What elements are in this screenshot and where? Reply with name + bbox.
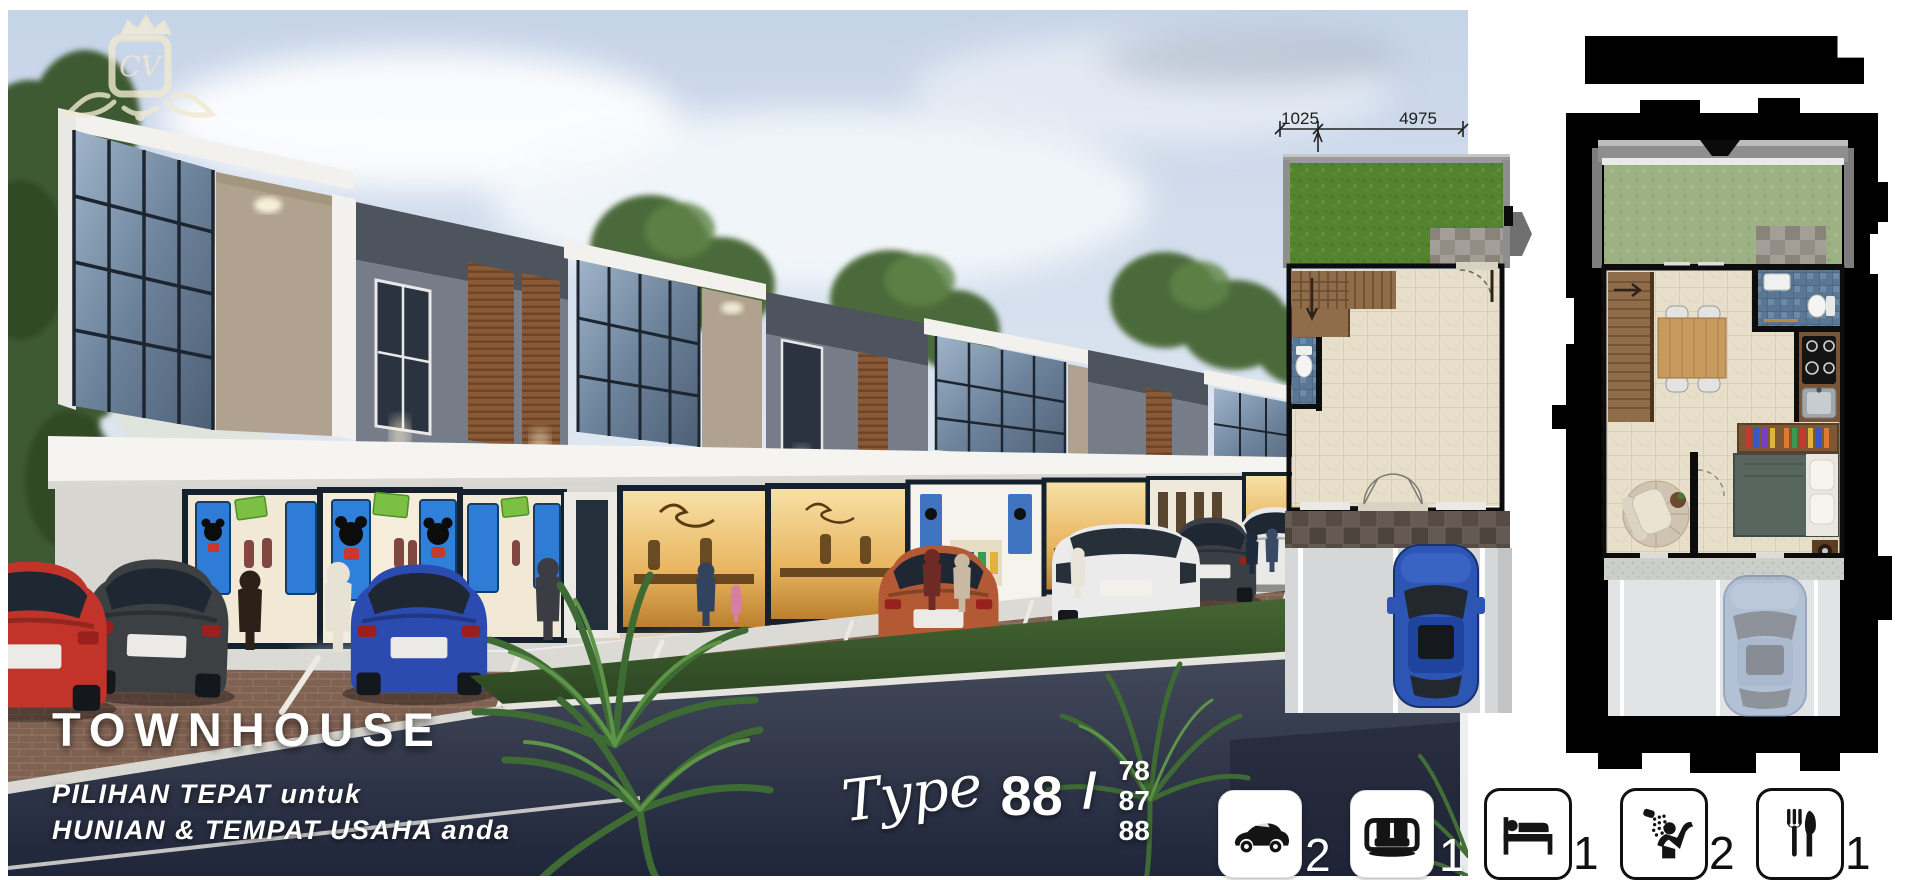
car-icon	[1229, 803, 1291, 865]
type-variant: 78	[1119, 756, 1150, 786]
type-variant-list: 78 87 88	[1119, 756, 1150, 846]
amenity-kitchen	[1756, 788, 1844, 880]
plan2-ghost-car	[1724, 576, 1806, 716]
tagline-line2: HUNIAN & TEMPAT USAHA anda	[52, 815, 511, 846]
bed-icon	[1498, 804, 1558, 864]
amenity-bedroom	[1484, 788, 1572, 880]
kitchen-count: 1	[1845, 830, 1871, 876]
type-variant: 87	[1119, 786, 1150, 816]
amenity-livingroom	[1350, 790, 1434, 878]
tagline-line1: PILIHAN TEPAT untuk	[52, 779, 361, 810]
type-label: Type 88 / 78 87 88	[842, 752, 1150, 846]
header-bar	[1585, 36, 1864, 84]
floorplan-1: 1025 4975	[1275, 109, 1532, 713]
amenity-bathroom	[1620, 788, 1708, 880]
type-separator: /	[1083, 766, 1097, 816]
carport-count: 2	[1305, 832, 1331, 878]
page-title: TOWNHOUSE	[52, 702, 443, 757]
sofa-icon	[1361, 803, 1423, 865]
cutlery-icon	[1770, 804, 1830, 864]
shower-icon	[1634, 804, 1694, 864]
amenity-carport	[1218, 790, 1302, 878]
type-variant: 88	[1119, 816, 1150, 846]
floorplan-2	[1592, 140, 1854, 716]
bathroom-count: 2	[1709, 830, 1735, 876]
livingroom-count: 1	[1439, 832, 1465, 878]
plan1-car	[1387, 545, 1485, 707]
dimension-left: 1025	[1281, 109, 1319, 128]
developer-logo: CV	[50, 12, 230, 132]
dimension-right: 4975	[1399, 109, 1437, 128]
logo-monogram: CV	[119, 50, 163, 83]
brochure-page: 1025 4975	[0, 0, 1920, 880]
bedroom-count: 1	[1573, 830, 1599, 876]
type-word: Type	[839, 758, 985, 832]
type-main-number: 88	[1000, 768, 1062, 824]
